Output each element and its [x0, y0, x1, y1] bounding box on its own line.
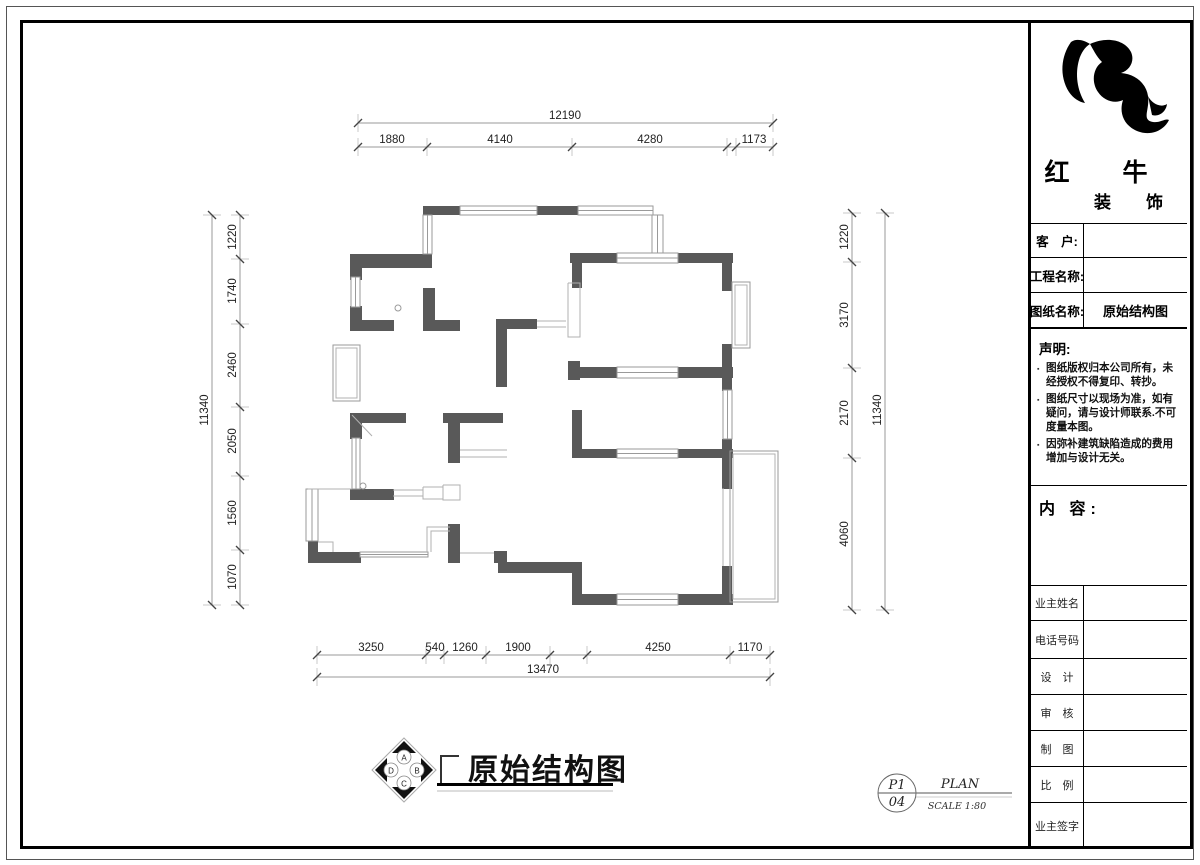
dimension-label: 3250 — [358, 642, 384, 654]
statement-text: 图纸版权归本公司所有，未经授权不得复印、转抄。 — [1046, 362, 1183, 390]
signature-row-label: 业主签字 — [1031, 803, 1084, 849]
dimension-label: 1560 — [227, 500, 239, 526]
thin-line — [443, 485, 460, 500]
dimension-label: 1220 — [839, 224, 851, 250]
bull-logo-icon — [1049, 38, 1169, 153]
statement-section: 声明: ▪图纸版权归本公司所有，未经授权不得复印、转抄。▪图纸尺寸以现场为准，如… — [1031, 329, 1187, 486]
drawing-title-group: 原始结构图 — [437, 754, 628, 791]
signature-row-value — [1084, 803, 1187, 849]
thin-line — [568, 283, 580, 337]
wall-segment — [350, 254, 432, 268]
dimension-label: 2460 — [227, 352, 239, 378]
logo-name-bottom: 装 饰 — [1083, 188, 1183, 213]
window — [333, 345, 360, 401]
statement-text: 因弥补建筑缺陷造成的费用增加与设计无关。 — [1046, 438, 1183, 466]
window — [351, 277, 360, 307]
dimension-label: 12190 — [549, 110, 581, 122]
field-value — [1084, 223, 1187, 257]
wall-segment — [722, 253, 732, 291]
dimension-label: 540 — [425, 642, 444, 654]
dimension-label: 3170 — [839, 302, 851, 328]
dimension-label: 13470 — [527, 664, 559, 676]
bullet-icon: ▪ — [1037, 393, 1046, 435]
drawing-title: 原始结构图 — [468, 754, 628, 787]
thin-line — [318, 542, 333, 552]
wall-segment — [350, 489, 394, 500]
title-fields: 客 户:工程名称:图纸名称:原始结构图 — [1031, 223, 1187, 329]
wall-segment — [494, 551, 507, 563]
statement-heading: 声明: — [1039, 338, 1187, 358]
dimension-chain: 13470 — [313, 664, 774, 686]
field-row: 客 户: — [1031, 223, 1187, 258]
bullet-icon: ▪ — [1037, 362, 1046, 390]
wall-segment — [572, 594, 618, 605]
field-row: 图纸名称:原始结构图 — [1031, 293, 1187, 329]
dimension-label: 4250 — [645, 642, 671, 654]
signature-rows: 业主姓名电话号码设 计审 核制 图比 例业主签字 — [1031, 585, 1187, 849]
floor-plan-canvas: 1219018804140428011731134012201740246020… — [0, 0, 1200, 865]
statement-text: 图纸尺寸以现场为准，如有疑问，请与设计师联系.不可度量本图。 — [1046, 393, 1183, 435]
statement-item: ▪因弥补建筑缺陷造成的费用增加与设计无关。 — [1037, 438, 1183, 466]
signature-row-value — [1084, 695, 1187, 730]
sheet-no-bottom: 04 — [889, 795, 906, 810]
content-section: 内 容: — [1031, 485, 1187, 586]
dimension-label: 11340 — [872, 394, 884, 425]
window — [578, 206, 653, 215]
logo-name-top: 红 牛 — [1039, 153, 1167, 189]
window — [460, 206, 537, 215]
dimension-label: 1880 — [379, 134, 405, 146]
wall-segment — [498, 562, 580, 573]
thin-line — [423, 487, 443, 499]
window — [652, 215, 663, 253]
wall-segment — [350, 320, 394, 331]
window — [723, 390, 732, 439]
wall-segment — [350, 413, 362, 439]
wall-segment — [423, 320, 460, 331]
signature-row: 比 例 — [1031, 767, 1187, 803]
wall-segment — [496, 319, 507, 387]
bullet-icon: ▪ — [1037, 438, 1046, 466]
dimension-chain: 11340 — [872, 209, 894, 614]
signature-row-value — [1084, 659, 1187, 694]
dimension-label: 4140 — [487, 134, 513, 146]
dimension-chain: 32505401260190042501170 — [313, 642, 774, 664]
wall-segment — [572, 449, 618, 458]
compass-letter-b: B — [414, 767, 419, 776]
logo-area: 红 牛 装 饰 — [1031, 20, 1187, 224]
field-label: 客 户: — [1031, 223, 1084, 257]
sheet-no-top: P1 — [887, 778, 905, 793]
dimension-label: 1900 — [505, 642, 531, 654]
flue-symbol — [395, 305, 401, 311]
signature-row: 制 图 — [1031, 731, 1187, 767]
window — [306, 489, 318, 541]
signature-row-label: 电话号码 — [1031, 621, 1084, 658]
wall-segment — [722, 367, 732, 391]
signature-row: 电话号码 — [1031, 621, 1187, 659]
wall-segment — [572, 367, 617, 378]
field-label: 工程名称: — [1031, 258, 1084, 292]
dimension-label: 1173 — [742, 134, 767, 146]
dimension-label: 11340 — [199, 394, 211, 425]
signature-row-value — [1084, 585, 1187, 620]
signature-row: 业主姓名 — [1031, 585, 1187, 621]
signature-row-value — [1084, 767, 1187, 802]
window — [617, 367, 678, 378]
flue-symbol — [360, 483, 366, 489]
compass-letter-c: C — [401, 780, 407, 789]
wall-segment — [448, 524, 460, 563]
dimension-chain: 122017402460205015601070 — [227, 211, 249, 609]
compass-letter-d: D — [388, 767, 394, 776]
dimension-label: 4060 — [839, 521, 851, 547]
signature-row-value — [1084, 621, 1187, 658]
signature-row: 设 计 — [1031, 659, 1187, 695]
window — [730, 451, 778, 602]
content-heading: 内 容: — [1039, 495, 1187, 519]
dimension-chain: 1220317021704060 — [839, 209, 861, 614]
wall-segment — [423, 206, 460, 215]
title-block: 红 牛 装 饰 客 户:工程名称:图纸名称:原始结构图 声明: ▪图纸版权归本公… — [1031, 20, 1187, 843]
wall-segment — [448, 413, 460, 463]
dimension-label: 2050 — [227, 428, 239, 454]
sheet-number-group: P1 04 PLAN SCALE 1:80 — [878, 774, 1012, 812]
dimension-label: 4280 — [637, 134, 663, 146]
statement-item: ▪图纸尺寸以现场为准，如有疑问，请与设计师联系.不可度量本图。 — [1037, 393, 1183, 435]
window — [617, 449, 678, 458]
signature-row: 业主签字 — [1031, 803, 1187, 849]
signature-row-value — [1084, 731, 1187, 766]
signature-row-label: 制 图 — [1031, 731, 1084, 766]
window — [617, 253, 678, 263]
field-label: 图纸名称: — [1031, 293, 1084, 327]
field-value — [1084, 258, 1187, 292]
dimension-label: 1740 — [227, 278, 239, 304]
field-value: 原始结构图 — [1084, 293, 1187, 327]
signature-row-label: 业主姓名 — [1031, 585, 1084, 620]
dimension-chain: 12190 — [354, 110, 777, 132]
window — [360, 552, 428, 557]
compass-letter-a: A — [401, 754, 407, 763]
wall-segment — [537, 206, 579, 215]
wall-segment — [308, 552, 361, 563]
dimension-label: 1220 — [227, 224, 239, 250]
window — [352, 438, 360, 489]
window — [617, 594, 678, 605]
dimension-chain: 1880414042801173 — [354, 134, 777, 156]
signature-row-label: 审 核 — [1031, 695, 1084, 730]
plan-label: PLAN — [940, 777, 980, 792]
dimension-chain: 11340 — [199, 211, 221, 609]
signature-row-label: 设 计 — [1031, 659, 1084, 694]
dimension-label: 2170 — [839, 400, 851, 426]
drawing-sheet: 1219018804140428011731134012201740246020… — [0, 0, 1200, 865]
window — [732, 282, 750, 348]
window — [423, 215, 432, 254]
signature-row-label: 比 例 — [1031, 767, 1084, 802]
scale-label: SCALE 1:80 — [928, 801, 986, 812]
statement-list: ▪图纸版权归本公司所有，未经授权不得复印、转抄。▪图纸尺寸以现场为准，如有疑问，… — [1037, 362, 1183, 466]
field-row: 工程名称: — [1031, 258, 1187, 293]
statement-item: ▪图纸版权归本公司所有，未经授权不得复印、转抄。 — [1037, 362, 1183, 390]
dimension-label: 1260 — [452, 642, 478, 654]
dimension-label: 1070 — [227, 564, 239, 590]
compass-icon: A B C D — [372, 738, 436, 802]
signature-row: 审 核 — [1031, 695, 1187, 731]
dimension-label: 1170 — [738, 642, 763, 654]
thin-line — [431, 531, 450, 552]
